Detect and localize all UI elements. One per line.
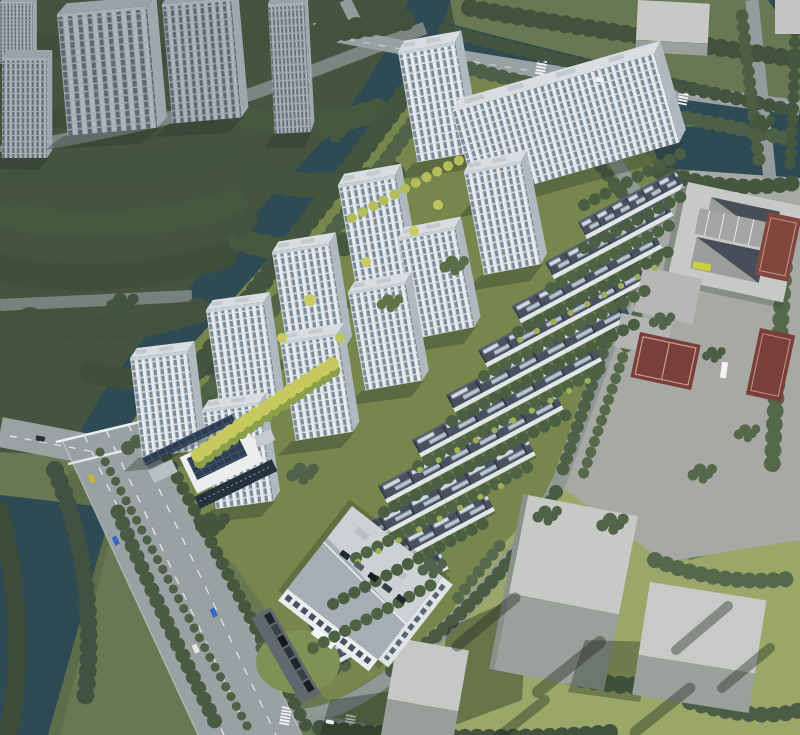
scene-svg: Aerial bird's-eye architectural renderin… [0, 0, 800, 735]
massing-cube [775, 0, 800, 34]
massing-cube [632, 582, 766, 713]
aerial-render: Aerial bird's-eye architectural renderin… [0, 0, 800, 735]
existing-tower [0, 50, 52, 170]
